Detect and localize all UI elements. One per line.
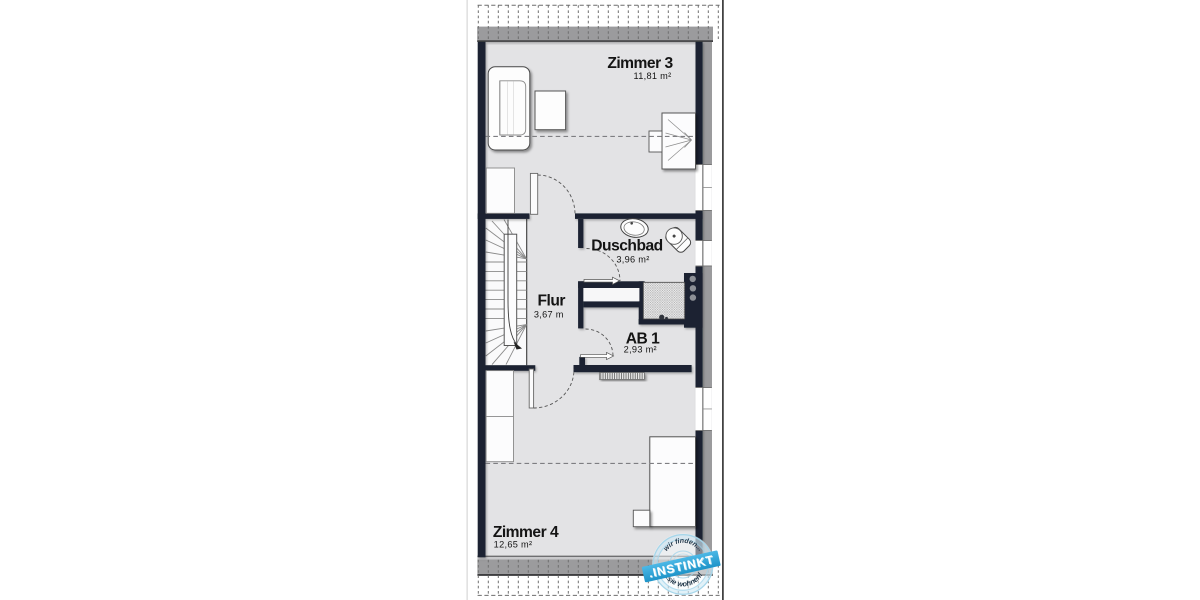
svg-text:11,81 m²: 11,81 m² <box>634 71 672 81</box>
svg-text:3,67 m: 3,67 m <box>534 310 564 320</box>
svg-text:Flur: Flur <box>537 292 565 309</box>
svg-text:Zimmer 3: Zimmer 3 <box>607 55 673 72</box>
svg-text:3,96 m²: 3,96 m² <box>616 255 649 265</box>
svg-text:12,65 m²: 12,65 m² <box>494 539 533 549</box>
svg-text:Duschbad: Duschbad <box>591 237 662 254</box>
svg-text:2,93 m²: 2,93 m² <box>624 345 657 355</box>
